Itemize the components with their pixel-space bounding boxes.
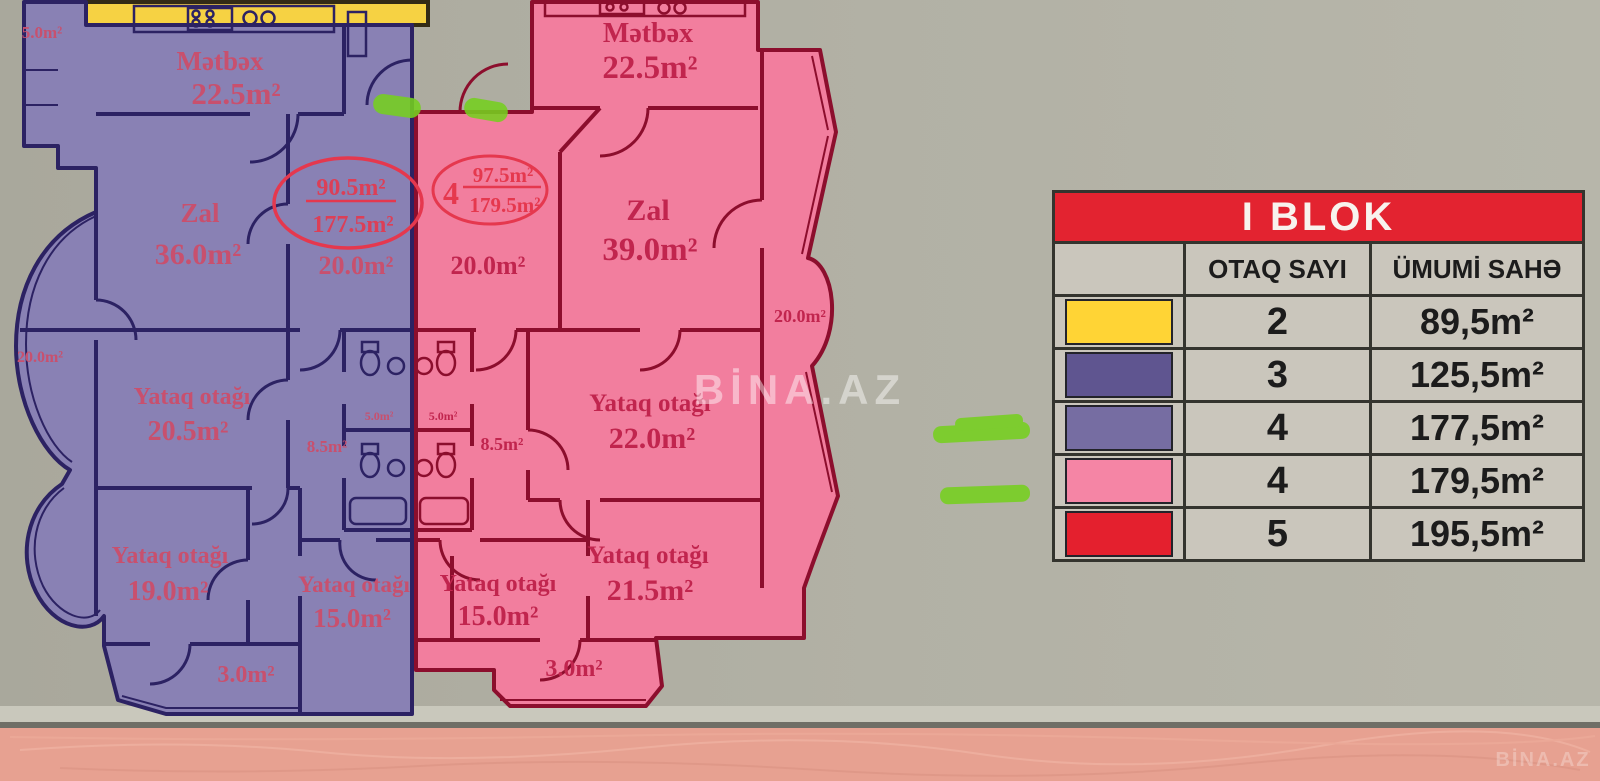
purple-bedroom3-name-label: Yataq otağı [298,572,410,597]
purple-bay-area-label: 20.0m² [17,349,63,366]
pink-bedroom2-area-label: 21.5m² [607,574,693,607]
pink-annotation-total: 179.5m² [469,193,540,217]
legend-row0-swatch-cell [1055,297,1183,347]
pink-hall-name-label: Zal [626,194,669,227]
legend-row2-rooms: 4 [1186,403,1369,453]
purple-bedroom2-name-label: Yataq otağı [112,543,229,569]
pink-bedroom1-name-label: Yataq otağı [589,390,711,417]
purple-bedroom1-name-label: Yataq otağı [134,384,251,410]
pink-corridor-area-label: 8.5m² [481,434,524,454]
pink-bedroom2-name-label: Yataq otağı [587,542,709,569]
legend-row0-area: 89,5m² [1372,297,1582,347]
legend-swatch-purple [1065,405,1173,451]
legend-header-rooms: OTAQ SAYI [1186,244,1369,294]
legend-swatch-red [1065,511,1173,557]
legend-table-title: I BLOK [1055,193,1582,241]
legend-row2-area: 177,5m² [1372,403,1582,453]
purple-bath-area-label: 5.0m² [365,409,394,423]
pink-bay-area-label: 20.0m² [774,306,826,326]
purple-kitchen-area-label: 22.5m² [191,76,280,111]
legend-row0-rooms: 2 [1186,297,1369,347]
pink-bath-area-label: 5.0m² [429,409,458,423]
purple-hall-area-label: 36.0m² [155,238,241,271]
legend-row2-swatch-cell [1055,403,1183,453]
purple-apartment: 5.0m² Mətbəx 22.5m² Zal 36.0m² 20.0m² 20… [16,2,412,714]
pink-kitchen-area-label: 22.5m² [602,50,697,86]
legend-table: I BLOK OTAQ SAYI ÜMUMİ SAHƏ 2 89,5m² 3 1… [1052,190,1585,562]
legend-row1-rooms: 3 [1186,350,1369,400]
legend-row3-area: 179,5m² [1372,456,1582,506]
legend-swatch-pink [1065,458,1173,504]
legend-row4-area: 195,5m² [1372,509,1582,559]
pink-annotation-living: 97.5m² [473,163,534,187]
legend-row1-area: 125,5m² [1372,350,1582,400]
pink-kitchen-name-label: Mətbəx [603,18,693,49]
legend-swatch-yellow [1065,299,1173,345]
green-dash-row-179 [940,484,1031,504]
pink-annotation-rooms: 4 [443,175,459,211]
purple-bedroom1-area-label: 20.5m² [148,416,229,447]
pink-hall-area-label: 39.0m² [602,232,697,268]
pink-bedroom3-area-label: 15.0m² [458,601,539,632]
purple-bedroom3-area-label: 15.0m² [313,603,391,633]
legend-swatch-darkpurple [1065,352,1173,398]
purple-bedroom2-area-label: 19.0m² [128,576,209,607]
legend-row3-rooms: 4 [1186,456,1369,506]
board-bevel-shadow [0,722,1600,728]
purple-foyer-area-label: 20.0m² [319,251,394,280]
floor-plan-poster: 5.0m² Mətbəx 22.5m² Zal 36.0m² 20.0m² 20… [0,0,1600,781]
watermark-corner: BİNA.AZ [1495,748,1590,771]
watermark-center: BİNA.AZ [694,366,906,413]
legend-row3-swatch-cell [1055,456,1183,506]
legend-header-area: ÜMUMİ SAHƏ [1372,244,1582,294]
purple-balcony-bottom-label: 3.0m² [217,662,274,688]
legend-row4-rooms: 5 [1186,509,1369,559]
purple-annotation-living: 90.5m² [316,175,385,201]
pink-foyer-area-label: 20.0m² [451,251,526,280]
purple-annotation-total: 177.5m² [312,212,393,238]
pink-balcony-bottom-label: 3.0m² [545,656,602,682]
legend-row4-swatch-cell [1055,509,1183,559]
pink-bedroom3-name-label: Yataq otağı [440,571,557,597]
legend-row1-swatch-cell [1055,350,1183,400]
purple-balcony-top-label: 5.0m² [22,23,63,42]
floor-strip [0,728,1600,781]
purple-corridor-area-label: 8.5m² [307,437,348,456]
purple-hall-name-label: Zal [180,198,220,228]
purple-kitchen-name-label: Mətbəx [177,46,264,76]
pink-bedroom1-area-label: 22.0m² [609,422,695,455]
legend-header-swatch [1055,244,1183,294]
